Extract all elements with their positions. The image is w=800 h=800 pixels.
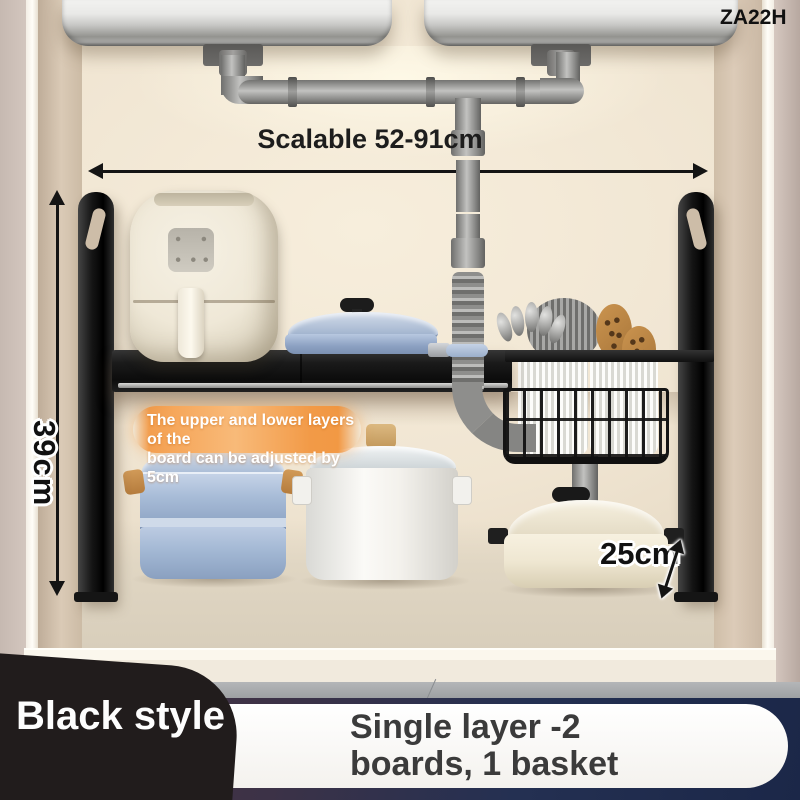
pipe-collar bbox=[426, 77, 435, 107]
spec-line2: boards, 1 basket bbox=[350, 746, 788, 783]
rack-left-post bbox=[78, 192, 114, 600]
pipe-collar bbox=[288, 77, 297, 107]
air-fryer-seam bbox=[133, 300, 275, 303]
style-banner-label: Black style bbox=[16, 694, 246, 739]
adjustment-note-line2: board can be adjusted by 5cm bbox=[147, 449, 361, 487]
left-outer-panel bbox=[0, 0, 26, 698]
flex-hose bbox=[452, 272, 484, 394]
product-code: ZA22H bbox=[720, 6, 796, 32]
sink-left bbox=[62, 0, 392, 46]
spec-line1: Single layer -2 bbox=[350, 709, 788, 746]
rack-right-foot bbox=[674, 592, 718, 602]
shelf-rod bbox=[118, 383, 508, 388]
height-arrow-down-head bbox=[49, 581, 65, 596]
width-arrow-right-head bbox=[693, 163, 708, 179]
sink-right bbox=[424, 0, 738, 46]
cutlery-group bbox=[496, 298, 566, 358]
wire-basket bbox=[503, 388, 669, 464]
blue-casserole-handle bbox=[446, 344, 488, 357]
trap-collar bbox=[566, 466, 604, 478]
height-arrow-up-head bbox=[49, 190, 65, 205]
steamer-handle-left bbox=[122, 469, 145, 496]
stockpot-handle-right bbox=[452, 476, 472, 505]
width-arrow bbox=[88, 163, 708, 181]
rack-left-foot bbox=[74, 592, 118, 602]
drain-flange bbox=[446, 154, 490, 162]
shelf-seam bbox=[300, 352, 302, 384]
steamer-lower-tier bbox=[140, 527, 286, 579]
air-fryer-top-recess bbox=[154, 193, 254, 206]
right-outer-panel bbox=[774, 0, 800, 698]
adjustment-note-line1: The upper and lower layers of the bbox=[147, 411, 361, 449]
air-fryer bbox=[130, 190, 278, 362]
stockpot-knob bbox=[366, 424, 396, 448]
right-inner-wall bbox=[714, 0, 764, 650]
width-arrow-left-head bbox=[88, 163, 103, 179]
width-dimension-label: Scalable 52-91cm bbox=[230, 124, 510, 155]
spoon-icon bbox=[525, 302, 538, 332]
product-image: ZA22H Scalable 52-91cm 39cm The upper an… bbox=[0, 0, 800, 800]
basket-top-rail bbox=[505, 350, 714, 362]
pipe-collar bbox=[516, 77, 525, 107]
height-dimension-label: 39cm bbox=[22, 420, 62, 580]
drain-pipe-mid bbox=[456, 160, 480, 212]
blue-casserole-body bbox=[285, 334, 437, 354]
adjustment-note: The upper and lower layers of the board … bbox=[133, 406, 361, 453]
drain-flange bbox=[448, 206, 488, 216]
drain-pipe-right-elbow bbox=[540, 78, 584, 104]
air-fryer-handle bbox=[178, 288, 204, 358]
spec-pill: Single layer -2 boards, 1 basket bbox=[200, 704, 788, 788]
air-fryer-control-panel bbox=[168, 228, 214, 272]
